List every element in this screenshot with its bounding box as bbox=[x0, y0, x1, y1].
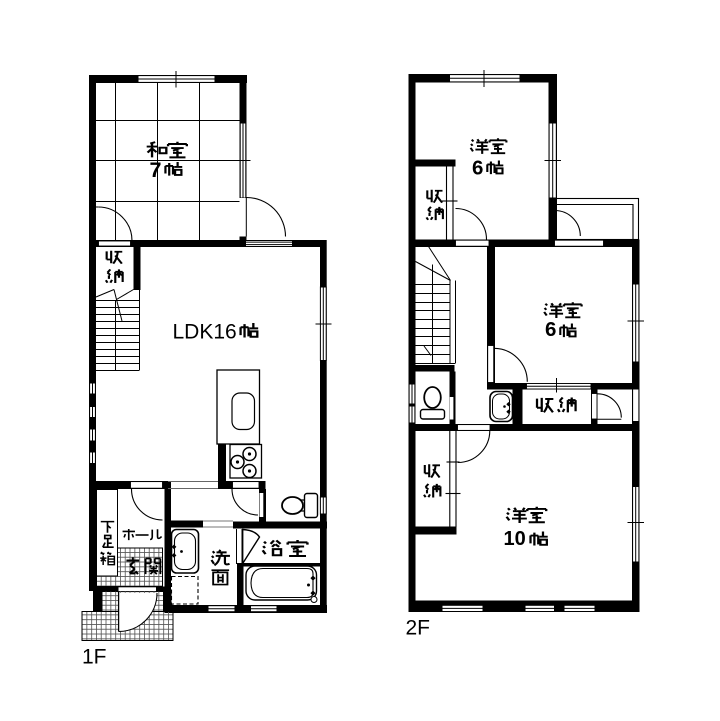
svg-text:2F: 2F bbox=[406, 617, 431, 640]
svg-text:LDK16: LDK16 bbox=[173, 321, 237, 344]
svg-text:10: 10 bbox=[504, 528, 526, 550]
svg-text:1F: 1F bbox=[82, 646, 107, 669]
svg-text:7: 7 bbox=[150, 158, 162, 182]
svg-text:6: 6 bbox=[472, 157, 483, 180]
svg-text:6: 6 bbox=[545, 318, 556, 341]
